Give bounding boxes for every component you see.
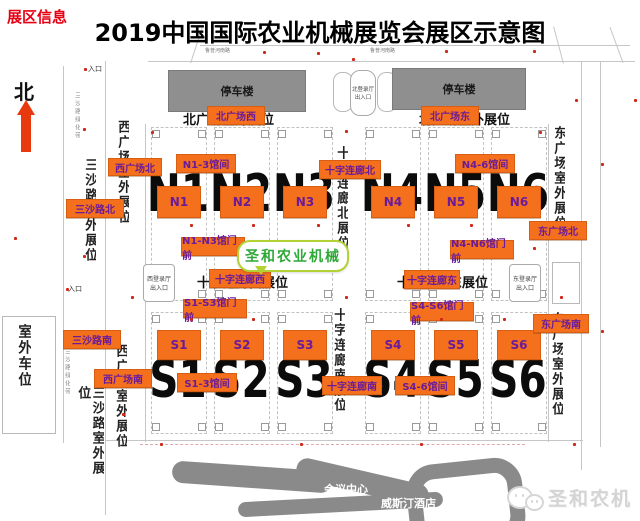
vertical-area-text: 三沙路室外展位 [75, 386, 104, 476]
red-marker-dot [440, 318, 443, 321]
horizontal-area-text: 入口 [88, 64, 102, 74]
booth-square [366, 130, 374, 138]
hall-tag-N3: N3 [283, 186, 327, 218]
hall-tag-S6: S6 [497, 330, 541, 360]
booth-square [278, 130, 286, 138]
booth-square [261, 130, 269, 138]
red-marker-dot [252, 318, 255, 321]
booth-square [412, 130, 420, 138]
red-marker-dot [190, 224, 193, 227]
area-label: 十字连廊北 [319, 160, 381, 179]
hall-tag-N6: N6 [497, 186, 541, 218]
red-marker-dot [263, 51, 266, 54]
hall-letter-S6: S6 [483, 356, 553, 404]
booth-square [215, 423, 223, 431]
red-marker-dot [345, 130, 348, 133]
red-marker-dot [634, 99, 637, 102]
highlight-bubble-tail [255, 266, 267, 275]
exhibition-map: 展区信息 2019中国国际农业机械展览会展区示意图 北 停车楼停车楼N1N1N2… [0, 0, 640, 521]
red-marker-dot [503, 318, 506, 321]
red-marker-dot [300, 443, 303, 446]
page-title: 2019中国国际农业机械展览会展区示意图 [0, 13, 640, 48]
north-arrow-shaft [21, 114, 31, 152]
red-marker-dot [122, 413, 125, 416]
red-marker-dot [539, 131, 542, 134]
booth-square [366, 423, 374, 431]
red-marker-dot [83, 255, 86, 258]
booth-square [475, 130, 483, 138]
vertical-area-text: 三沙路绿化带 [63, 348, 70, 396]
area-label: 北广场东 [421, 106, 479, 125]
area-label: N1-N3馆门前 [181, 237, 245, 256]
map-line [581, 61, 582, 470]
booth-square [429, 130, 437, 138]
red-marker-dot [601, 163, 604, 166]
booth-square [152, 315, 160, 323]
hall-tag-S3: S3 [283, 330, 327, 360]
highlight-bubble: 圣和农业机械 [237, 240, 349, 272]
hall-tag-N1: N1 [157, 186, 201, 218]
red-marker-dot [470, 224, 473, 227]
conference-center-label: 会议中心 [324, 481, 368, 497]
horizontal-area-text: 鲁普河南路 [205, 47, 230, 54]
conference-building-loop [404, 455, 528, 521]
booth-square [261, 315, 269, 323]
booth-square [324, 290, 332, 298]
booth-square [261, 423, 269, 431]
vertical-area-text: 室外车位 [16, 324, 31, 426]
booth-square [278, 315, 286, 323]
parking-building-label: 停车楼 [221, 83, 254, 99]
red-marker-dot [317, 52, 320, 55]
parking-building: 停车楼 [392, 68, 526, 110]
area-label: 西广场北 [108, 158, 162, 176]
vertical-area-text: 西广场室外展位 [115, 120, 129, 272]
booth-square [429, 423, 437, 431]
red-marker-dot [345, 296, 348, 299]
red-marker-dot [575, 99, 578, 102]
red-marker-dot [352, 58, 355, 61]
map-line [600, 61, 601, 447]
watermark-text: 圣和农机 [548, 484, 632, 511]
booth-square [261, 290, 269, 298]
entrance-box: 东登录厅 出入口 [509, 264, 541, 302]
area-label: N4-6馆间 [455, 154, 515, 173]
vertical-area-text: 三沙路绿化带 [73, 92, 80, 147]
red-marker-dot [533, 50, 536, 53]
red-marker-dot [533, 247, 536, 250]
red-marker-dot [83, 128, 86, 131]
red-marker-dot [601, 330, 604, 333]
red-marker-dot [131, 296, 134, 299]
area-label: 三沙路南 [63, 330, 121, 349]
red-marker-dot [445, 50, 448, 53]
entrance-box: 北登录厅 出入口 [350, 70, 376, 116]
booth-square [366, 290, 374, 298]
booth-square [475, 315, 483, 323]
area-label: 三沙路北 [66, 199, 124, 218]
horizontal-area-text: 鲁普河南路 [370, 47, 395, 54]
hall-tag-N5: N5 [434, 186, 478, 218]
vertical-area-text: 东广场室外展位 [551, 126, 565, 274]
red-marker-dot [420, 443, 423, 446]
booth-square [412, 423, 420, 431]
map-line [105, 61, 106, 515]
hall-tag-S4: S4 [371, 330, 415, 360]
red-marker-dot [407, 224, 410, 227]
horizontal-area-text: 入口 [68, 284, 82, 294]
area-label: 东广场南 [533, 314, 589, 333]
red-marker-dot [560, 296, 563, 299]
booth-square [538, 423, 546, 431]
hall-tag-N2: N2 [220, 186, 264, 218]
area-label: N4-N6馆门前 [450, 240, 514, 259]
booth-square [492, 423, 500, 431]
north-arrow-icon [17, 100, 35, 115]
booth-square [324, 423, 332, 431]
booth-square [198, 130, 206, 138]
red-marker-dot [160, 443, 163, 446]
booth-square [198, 423, 206, 431]
area-label: 十字连廊东 [404, 270, 460, 289]
area-label: 西广场南 [94, 369, 152, 388]
area-label: 北广场西 [207, 106, 265, 125]
area-label: S1-S3馆门前 [183, 299, 247, 318]
red-marker-dot [252, 224, 255, 227]
red-marker-dot [317, 224, 320, 227]
red-marker-dot [190, 318, 193, 321]
hotel-label: 威斯汀酒店 [381, 495, 436, 511]
booth-square [366, 315, 374, 323]
booth-square [475, 290, 483, 298]
area-label: N1-3馆间 [176, 154, 236, 173]
wechat-icon-small [525, 494, 544, 511]
booth-square [152, 423, 160, 431]
booth-square [492, 130, 500, 138]
booth-square [492, 315, 500, 323]
hall-tag-N4: N4 [371, 186, 415, 218]
red-marker-dot [151, 131, 154, 134]
hall-tag-S2: S2 [220, 330, 264, 360]
area-label: S4-6馆间 [395, 376, 455, 395]
booth-square [278, 423, 286, 431]
parking-building-label: 停车楼 [443, 81, 476, 97]
highlight-text: 圣和农业机械 [245, 246, 341, 266]
red-marker-dot [14, 237, 17, 240]
red-marker-dot [66, 288, 69, 291]
vertical-area-text: 西广场室外展位 [113, 344, 127, 472]
map-line [105, 440, 583, 441]
area-label: S1-3馆间 [177, 373, 237, 392]
entrance-box: 西登录厅 出入口 [143, 264, 175, 302]
hall-tag-S5: S5 [434, 330, 478, 360]
booth-square [278, 290, 286, 298]
booth-square [215, 130, 223, 138]
red-marker-dot [573, 443, 576, 446]
booth-square [492, 290, 500, 298]
booth-square [324, 130, 332, 138]
red-marker-dot [84, 68, 87, 71]
map-line [140, 444, 525, 445]
area-label: 十字连廊南 [322, 376, 382, 395]
area-label: 东广场北 [529, 221, 587, 240]
hall-tag-S1: S1 [157, 330, 201, 360]
booth-square [475, 423, 483, 431]
